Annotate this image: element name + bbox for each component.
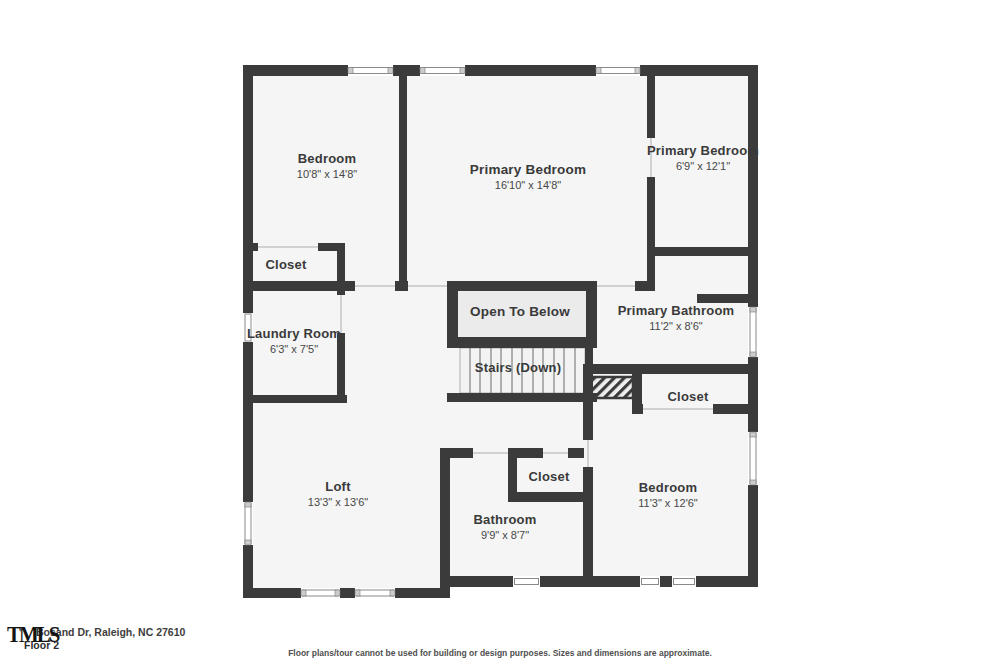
room-name: Laundry Room <box>247 326 341 342</box>
room-label-laundry-room: Laundry Room 6'3" x 7'5" <box>247 326 341 356</box>
disclaimer-text: Floor plans/tour cannot be used for buil… <box>288 648 712 658</box>
room-dims: 10'8" x 14'8" <box>297 168 357 181</box>
room-name: Bedroom <box>638 480 698 496</box>
room-label-closet-right: Closet <box>668 389 709 405</box>
room-label-stairs-down: Stairs (Down) <box>475 360 561 376</box>
room-dims: 6'3" x 7'5" <box>247 343 341 356</box>
room-name: Open To Below <box>470 304 570 320</box>
room-label-bedroom-1: Bedroom 10'8" x 14'8" <box>297 151 357 181</box>
room-label-loft: Loft 13'3" x 13'6" <box>308 479 368 509</box>
room-label-closet-left: Closet <box>266 257 307 273</box>
room-dims: 9'9" x 8'7" <box>474 529 537 542</box>
room-name: Bathroom <box>474 512 537 528</box>
room-name: Primary Bedroom <box>647 143 759 159</box>
floor-plan-drawing <box>0 0 1000 667</box>
room-name: Primary Bedroom <box>470 162 586 178</box>
room-name: Loft <box>308 479 368 495</box>
room-name: Closet <box>529 469 570 485</box>
room-name: Primary Bathroom <box>618 303 735 319</box>
room-name: Stairs (Down) <box>475 360 561 376</box>
floor-label: Floor 2 <box>24 639 59 651</box>
room-dims: 13'3" x 13'6" <box>308 496 368 509</box>
room-label-open-to-below: Open To Below <box>470 304 570 320</box>
room-name: Bedroom <box>297 151 357 167</box>
room-label-primary-bedroom: Primary Bedroom 16'10" x 14'8" <box>470 162 586 192</box>
room-label-closet-middle: Closet <box>529 469 570 485</box>
room-dims: 11'2" x 8'6" <box>618 320 735 333</box>
room-label-primary-bedroom-2: Primary Bedroom 6'9" x 12'1" <box>647 143 759 173</box>
room-dims: 6'9" x 12'1" <box>647 160 759 173</box>
room-label-primary-bathroom: Primary Bathroom 11'2" x 8'6" <box>618 303 735 333</box>
room-label-bathroom: Bathroom 9'9" x 8'7" <box>474 512 537 542</box>
room-dims: 16'10" x 14'8" <box>470 179 586 192</box>
room-name: Closet <box>266 257 307 273</box>
floor-plan-page: { "footer": { "logo_text": "TMLS", "addr… <box>0 0 1000 667</box>
room-label-bedroom-2: Bedroom 11'3" x 12'6" <box>638 480 698 510</box>
room-name: Closet <box>668 389 709 405</box>
room-dims: 11'3" x 12'6" <box>638 497 698 510</box>
